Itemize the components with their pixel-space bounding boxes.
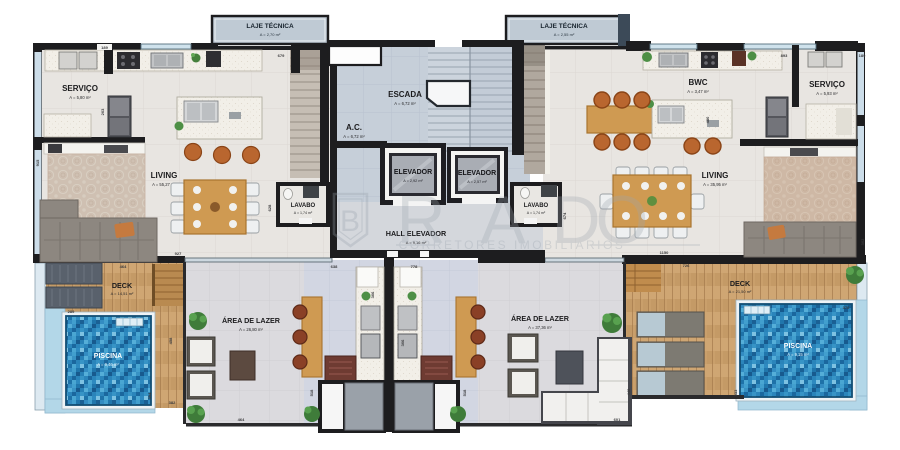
svg-text:1150: 1150 [660, 250, 669, 255]
svg-text:A = 5,93 m²: A = 5,93 m² [816, 91, 838, 96]
svg-text:679: 679 [278, 53, 285, 58]
svg-text:ELEVADOR: ELEVADOR [394, 169, 432, 176]
svg-text:203: 203 [100, 108, 105, 115]
svg-text:448: 448 [626, 388, 631, 395]
svg-text:A = 1,74 m²: A = 1,74 m² [294, 211, 313, 215]
svg-text:778: 778 [411, 264, 418, 269]
svg-text:518: 518 [462, 389, 467, 396]
svg-text:PISCINA: PISCINA [784, 343, 812, 350]
svg-text:CORRETORES IMOBILIÁRIOS: CORRETORES IMOBILIÁRIOS [399, 237, 626, 252]
svg-text:458: 458 [168, 337, 173, 344]
svg-text:ÁREA DE LAZER: ÁREA DE LAZER [222, 316, 281, 325]
svg-text:674: 674 [562, 212, 567, 219]
svg-text:302: 302 [860, 238, 865, 245]
svg-text:189: 189 [859, 53, 866, 58]
svg-text:189: 189 [101, 45, 108, 50]
svg-text:893: 893 [781, 53, 788, 58]
svg-text:SERVIÇO: SERVIÇO [809, 80, 845, 89]
svg-text:464: 464 [120, 264, 127, 269]
svg-text:306: 306 [400, 339, 405, 346]
svg-text:LIVING: LIVING [151, 171, 178, 180]
svg-text:927: 927 [175, 251, 182, 256]
svg-text:628: 628 [267, 204, 272, 211]
svg-text:BWC: BWC [688, 78, 707, 87]
svg-text:370: 370 [843, 305, 850, 310]
svg-text:ÁREA DE LAZER: ÁREA DE LAZER [511, 314, 570, 323]
svg-text:518: 518 [309, 389, 314, 396]
svg-text:289: 289 [68, 309, 75, 314]
svg-text:A = 5,80 m²: A = 5,80 m² [69, 95, 91, 100]
svg-text:A = 2,70 m²: A = 2,70 m² [260, 32, 281, 37]
svg-text:LAJE TÉCNICA: LAJE TÉCNICA [540, 21, 588, 30]
svg-text:A = 6,72 m²: A = 6,72 m² [343, 134, 365, 139]
svg-text:480: 480 [705, 116, 710, 123]
svg-text:DECK: DECK [112, 281, 133, 290]
svg-text:B: B [340, 205, 360, 238]
svg-text:726: 726 [683, 263, 690, 268]
svg-text:A.C.: A.C. [346, 123, 362, 132]
svg-text:LAVABO: LAVABO [524, 203, 549, 209]
svg-text:915: 915 [35, 159, 40, 166]
svg-text:ESCADA: ESCADA [388, 90, 422, 99]
svg-text:306: 306 [370, 291, 375, 298]
svg-text:638: 638 [331, 264, 338, 269]
svg-text:SERVIÇO: SERVIÇO [62, 84, 98, 93]
svg-text:A = 37,36 m²: A = 37,36 m² [528, 325, 552, 330]
svg-text:LIVING: LIVING [702, 171, 729, 180]
svg-text:PISCINA: PISCINA [94, 353, 122, 360]
svg-text:A = 35,95 m²: A = 35,95 m² [703, 182, 727, 187]
svg-text:A = 2,55 m²: A = 2,55 m² [554, 32, 575, 37]
svg-text:ELEVADOR: ELEVADOR [458, 170, 496, 177]
svg-text:601: 601 [614, 417, 621, 422]
svg-text:464: 464 [238, 417, 245, 422]
svg-text:382: 382 [169, 400, 176, 405]
svg-text:DECK: DECK [730, 279, 751, 288]
svg-text:A = 9,46 m²: A = 9,46 m² [97, 362, 119, 367]
svg-text:A = 14,51 m²: A = 14,51 m² [111, 291, 134, 296]
svg-text:A = 3,47 m²: A = 3,47 m² [687, 89, 709, 94]
svg-text:LAJE TÉCNICA: LAJE TÉCNICA [246, 21, 294, 30]
svg-text:A = 1,74 m²: A = 1,74 m² [527, 211, 546, 215]
svg-text:A = 6,72 m²: A = 6,72 m² [394, 101, 416, 106]
svg-text:A = 9,15 m²: A = 9,15 m² [787, 352, 809, 357]
svg-text:533: 533 [733, 389, 738, 396]
svg-text:LAVABO: LAVABO [291, 203, 316, 209]
svg-text:394: 394 [147, 392, 152, 399]
svg-text:A = 26,80 m²: A = 26,80 m² [239, 327, 263, 332]
svg-text:A = 21,50 m²: A = 21,50 m² [729, 289, 752, 294]
